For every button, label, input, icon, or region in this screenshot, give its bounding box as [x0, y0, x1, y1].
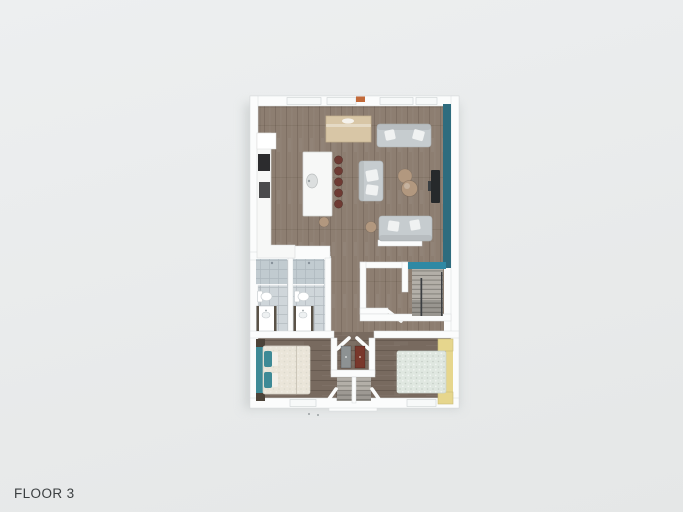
island-stool — [319, 217, 329, 227]
faucet — [302, 310, 304, 312]
render-artifacts — [308, 413, 319, 416]
vanity — [294, 306, 314, 331]
stair-railing — [441, 272, 443, 316]
sink — [299, 312, 307, 318]
pillow — [387, 220, 399, 231]
bed-left — [263, 346, 310, 394]
bedroom-left — [256, 339, 310, 401]
headboard-teal — [256, 347, 263, 393]
sink — [262, 312, 270, 318]
bathroom-divider-wall — [288, 258, 293, 332]
stair-teal-wall — [408, 262, 446, 269]
faucet — [308, 180, 310, 182]
sofa-top — [377, 124, 431, 147]
nightstand-yellow — [438, 392, 453, 404]
floor-plan-render — [0, 0, 683, 512]
nightstand — [256, 339, 265, 347]
vanity — [257, 306, 277, 331]
kitchen-end-wall — [294, 246, 330, 260]
stair-railing — [421, 278, 423, 316]
shower-drain — [271, 262, 273, 264]
stair-divider — [352, 377, 356, 403]
dining-console — [326, 116, 371, 142]
side-pouf — [366, 222, 377, 233]
bathroom-right-wall — [325, 258, 331, 332]
nightstand — [256, 393, 265, 401]
pillow — [365, 184, 378, 196]
stove — [258, 154, 270, 171]
bedroom-right-top-wall — [374, 331, 459, 338]
pillow — [365, 169, 379, 182]
teal-accent-wall — [443, 104, 451, 268]
pillow — [409, 219, 421, 231]
pillow — [384, 129, 396, 141]
hall-left-wall — [331, 338, 337, 374]
vent — [356, 97, 365, 103]
hall-bottom-wall — [331, 370, 375, 377]
kitchen-island — [303, 152, 332, 216]
loveseat — [359, 161, 383, 201]
hall-right-wall — [369, 338, 375, 374]
floor-label: FLOOR 3 — [14, 486, 75, 501]
pillow-teal — [264, 372, 272, 388]
shower-glass — [293, 284, 324, 285]
floor-plan — [250, 96, 459, 416]
floor-plan-viewer: FLOOR 3 — [0, 0, 683, 512]
tv-stand — [428, 181, 431, 191]
pillow-teal — [264, 351, 272, 367]
shower-drain — [308, 262, 310, 264]
refrigerator — [257, 133, 276, 149]
bed-right — [397, 351, 446, 393]
nightstand-yellow — [438, 339, 453, 351]
duvet-fold — [296, 346, 297, 394]
oven — [259, 182, 270, 198]
shower-glass — [256, 284, 287, 285]
table-decor — [342, 118, 354, 123]
staircase-upper — [412, 269, 443, 316]
bedroom-left-top-wall — [250, 331, 334, 338]
pillow-white — [272, 373, 278, 387]
faucet — [265, 310, 267, 312]
pillow-white — [272, 352, 278, 366]
sofa-bottom — [379, 216, 432, 241]
